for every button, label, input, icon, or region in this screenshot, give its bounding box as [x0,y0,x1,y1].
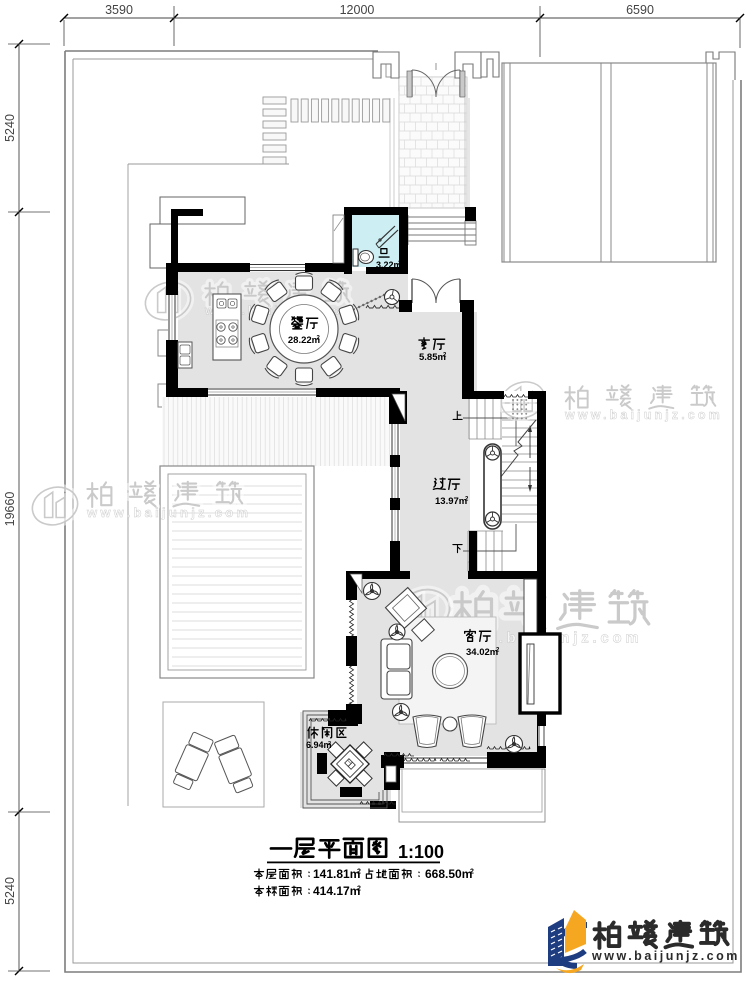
svg-text:13.97m: 13.97m [435,496,467,507]
svg-text:5240: 5240 [3,114,17,142]
svg-text:5240: 5240 [3,877,17,905]
svg-text:19660: 19660 [3,492,17,527]
svg-text:www.baijunjz.com: www.baijunjz.com [591,949,740,963]
svg-text:2: 2 [357,869,361,876]
svg-text:2: 2 [398,261,401,267]
svg-text:668.50m: 668.50m [425,867,472,881]
svg-text:414.17m: 414.17m [313,884,360,898]
svg-text:2: 2 [357,886,361,893]
svg-text:2: 2 [470,869,474,876]
svg-text:www.baijunjz.com: www.baijunjz.com [86,505,251,520]
svg-text:2: 2 [328,741,331,747]
svg-text:12000: 12000 [340,3,375,17]
svg-text:141.81m: 141.81m [313,867,360,881]
svg-text:www.baijunjz.com: www.baijunjz.com [564,408,723,422]
svg-text:28.22m: 28.22m [288,335,320,346]
svg-text:34.02m: 34.02m [466,647,498,658]
svg-text:1:100: 1:100 [398,842,444,862]
svg-text:5.85m: 5.85m [419,352,446,363]
svg-text:3590: 3590 [105,3,133,17]
svg-text:6590: 6590 [626,3,654,17]
